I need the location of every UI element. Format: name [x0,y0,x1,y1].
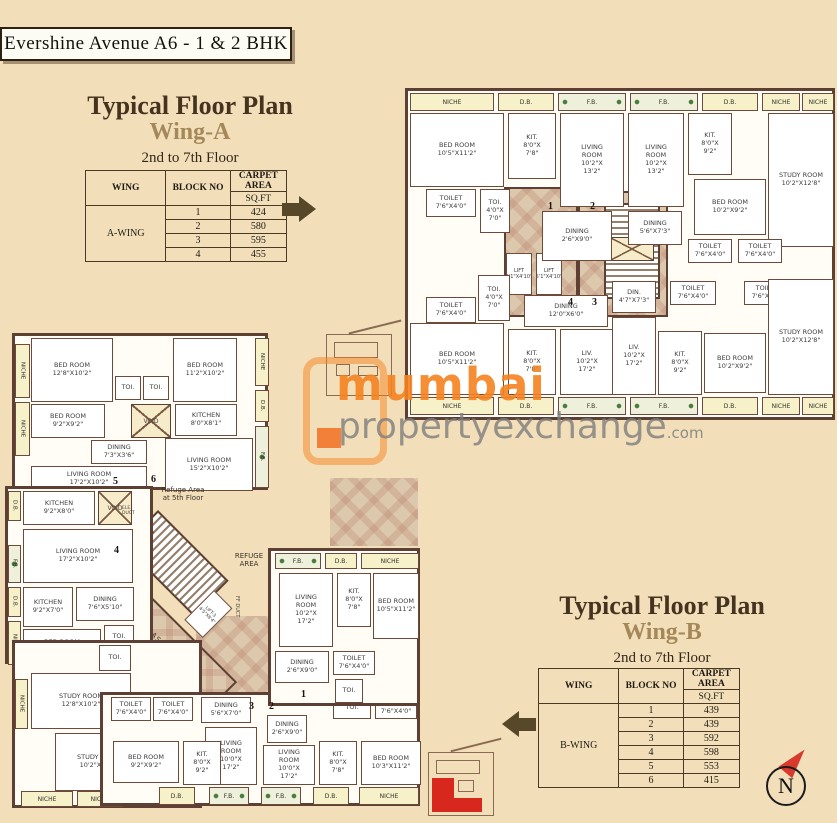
key-plan-outline [349,319,402,334]
unit-number: 3 [249,701,254,712]
niche-strip: NICHE [410,397,494,415]
wing-a-col-wing: WING [86,171,166,206]
room-kitchen: KIT. 8'0"X 9'2" [688,113,732,175]
room-bedroom: BED ROOM 9'2"X9'2" [113,741,179,783]
table-cell: 595 [230,234,286,248]
room-toilet: TOI. 4'0"X 7'0" [478,275,510,321]
plan-wing-a: LIFT 5'1"X4'10" LIFT 5'1"X4'10" NICHE D.… [405,88,835,420]
room-dining: DIN. 4'7"X7'3" [612,281,656,313]
db-strip: D.B. [313,787,349,805]
room-living: LIVING ROOM 10'0"X 17'2" [263,745,315,785]
room-bedroom: BED ROOM 10'5"X11'2" [373,573,419,639]
table-cell: 592 [683,732,739,746]
table-cell: 1 [166,206,230,220]
room-toilet: TOI. [335,679,363,703]
fb-strip: F.B. [8,545,21,583]
room-kitchen: KIT. 8'0"X 9'2" [183,741,221,785]
db-strip: D.B. [255,390,269,422]
unit-number: 1 [301,689,306,700]
niche-strip: NICHE [410,93,494,111]
plan-wing-b-top: NICHE NICHE BED ROOM 12'8"X10'2" TOI. TO… [12,333,268,490]
niche-strip: NICHE [15,679,28,729]
table-cell: 6 [619,774,683,788]
table-cell: 439 [683,718,739,732]
db-strip: D.B. [498,93,554,111]
room-kitchen: KIT. 8'0"X 7'8" [337,573,371,627]
room-bedroom: BED ROOM 10'3"X11'2" [361,741,421,785]
key-plan-building [334,342,378,358]
fb-strip: F.B. [261,787,301,805]
room-toilet: TOILET 7'6"X4'0" [688,239,732,263]
room-dining: DINING 5'6"X7'0" [201,697,251,723]
table-cell: 4 [166,248,230,262]
room-dining: DINING 2'6"X9'0" [542,211,612,261]
wing-a-table: WING BLOCK NO CARPET AREA SQ.FT A-WING 1… [85,170,287,262]
key-plan-highlight-wing-b [454,798,482,812]
wing-b-arrow [502,711,536,737]
fb-strip: F.B. [275,553,321,569]
niche-strip: NICHE [762,93,800,111]
table-cell: 580 [230,220,286,234]
wing-a-col-unit: SQ.FT [230,192,286,206]
room-kitchen: KIT. 8'0"X 9'2" [658,331,702,395]
fb-strip: F.B. [209,787,249,805]
niche-strip: NICHE [255,338,269,386]
ff-duct-label: FF DUCT [234,596,240,630]
niche-strip: NICHE [21,791,73,807]
room-dining: DINING 2'6"X9'0" [267,715,307,743]
fb-strip: F.B. [630,93,698,111]
room-bedroom: BED ROOM 10'2"X9'2" [704,333,766,393]
wing-b-title: Typical Floor Plan [540,592,784,619]
plan-wing-b-bottom: TOILET 7'6"X4'0" TOILET 7'6"X4'0" DINING… [100,692,420,806]
table-cell: 455 [230,248,286,262]
wing-b-floors: 2nd to 7th Floor [540,650,784,667]
room-living: LIVING ROOM 10'2"X 13'2" [628,113,684,207]
table-cell: 598 [683,746,739,760]
niche-strip: NICHE [15,402,30,456]
table-cell: 439 [683,704,739,718]
refuge-area-label: REFUGE AREA [222,552,276,568]
page-title: Evershine Avenue A6 - 1 & 2 BHK [0,27,292,61]
arrow-head-left-icon [502,711,519,737]
unit-number: 2 [590,201,595,212]
table-cell: 424 [230,206,286,220]
room-kitchen: KITCHEN 9'2"X8'0" [23,491,95,525]
room-kitchen: KIT. 8'0"X 7'8" [319,741,357,785]
wing-a-col-block: BLOCK NO [166,171,230,206]
room-toilet: TOILET 7'6"X4'0" [738,239,782,263]
compass-icon: N [766,766,806,806]
terrace-area [330,478,418,546]
wing-b-col-wing: WING [539,669,619,704]
room-bedroom: BED ROOM 10'5"X11'2" [410,113,504,187]
room-living: LIVING ROOM 15'2"X10'2" [165,438,253,491]
arrow-head-right-icon [299,196,316,222]
wing-b-col-unit: SQ.FT [683,690,739,704]
niche-strip: NICHE [15,344,30,398]
key-plan-building [458,780,474,792]
room-toilet: TOI. [115,376,141,400]
room-dining: DINING 2'6"X9'0" [275,651,329,683]
room-toilet: TOILET 7'6"X4'0" [333,651,375,675]
table-cell: 1 [619,704,683,718]
key-plan-outline [451,738,502,753]
room-living: LIVING ROOM 10'2"X 17'2" [279,573,333,647]
fb-strip: F.B. [255,426,269,488]
table-cell: 5 [619,760,683,774]
room-toilet: TOI. [143,376,169,400]
watermark-tld: .com [667,424,704,442]
table-cell: 553 [683,760,739,774]
unit-number: 4 [114,545,119,556]
room-toilet: TOILET 7'6"X4'0" [153,697,193,721]
key-plan-highlight-wing-b [432,778,454,812]
db-strip: D.B. [498,397,554,415]
room-dining: DINING 7'6"X5'10" [76,587,134,621]
room-bedroom: BED ROOM 9'2"X9'2" [31,404,105,438]
unit-number: 2 [269,701,274,712]
wing-a-col-area: CARPET AREA [230,171,286,192]
fb-strip: F.B. [558,93,626,111]
compass-n-label: N [778,773,794,799]
refuge-floor-label: Refuge Area at 5th Floor [140,486,226,502]
key-plan-wing-b [424,740,504,822]
room-toilet: TOILET 7'6"X4'0" [426,189,476,217]
room-kitchen: KITCHEN 9'2"X7'0" [23,587,73,627]
wing-a-arrow [282,196,316,222]
fb-strip: F.B. [558,397,626,415]
db-strip: D.B. [702,397,758,415]
room-kitchen: KIT. 8'0"X 7'8" [508,329,556,395]
db-strip: D.B. [325,553,357,569]
db-strip: D.B. [8,491,21,521]
wing-a-floors: 2nd to 7th Floor [68,150,312,167]
room-toilet: TOI. [99,645,131,671]
wing-a-title: Typical Floor Plan [68,92,312,119]
room-study: STUDY ROOM 10'2"X12'8" [768,279,834,395]
arrow-shaft [519,718,536,731]
void-shaft: VOID [131,404,171,438]
wing-a-heading-block: Typical Floor Plan Wing-A 2nd to 7th Flo… [68,92,312,167]
unit-number: 4 [568,297,573,308]
wing-b-heading-block: Typical Floor Plan Wing-B 2nd to 7th Flo… [540,592,784,667]
ele-duct-label: ELE. DUCT [122,506,144,516]
arrow-shaft [282,203,299,216]
room-living: LIV. 10'2"X 17'2" [560,329,614,395]
room-dining: DINING 5'6"X7'3" [628,211,682,245]
room-living: LIV. 10'2"X 17'2" [612,317,656,395]
niche-strip: NICHE [361,553,419,569]
room-toilet: TOILET 7'6"X4'0" [670,281,716,305]
room-study: STUDY ROOM 10'2"X12'8" [768,113,834,247]
watermark-logo-square [317,428,341,448]
niche-strip: NICHE [359,787,419,805]
table-cell: 4 [619,746,683,760]
unit-number: 1 [548,201,553,212]
wing-b-name-cell: B-WING [539,704,619,788]
table-cell: 415 [683,774,739,788]
wing-a-name-cell: A-WING [86,206,166,262]
room-bedroom: BED ROOM 11'2"X10'2" [173,338,237,402]
db-strip: D.B. [702,93,758,111]
wing-b-col-area: CARPET AREA [683,669,739,690]
room-toilet: TOILET 7'6"X4'0" [426,297,476,323]
fb-strip: F.B. [630,397,698,415]
room-living: LIVING ROOM 17'2"X10'2" [23,529,133,583]
table-cell: 2 [619,718,683,732]
table-cell: 3 [619,732,683,746]
table-cell: 3 [166,234,230,248]
room-bedroom: BED ROOM 10'2"X9'2" [694,179,766,235]
niche-strip: NICHE [802,93,834,111]
room-bedroom: BED ROOM 10'5"X11'2" [410,323,504,395]
room-kitchen: KIT. 8'0"X 7'8" [508,113,556,179]
unit-number: 3 [592,297,597,308]
wing-b-table: WING BLOCK NO CARPET AREA SQ.FT B-WING 1… [538,668,740,788]
room-bedroom: BED ROOM 12'8"X10'2" [31,338,113,402]
room-living: LIVING ROOM 10'2"X 13'2" [560,113,624,207]
watermark-logo-icon [303,357,387,465]
wing-b-subtitle: Wing-B [540,619,784,645]
db-strip: D.B. [8,587,21,617]
room-kitchen: KITCHEN 8'0"X8'1" [175,404,237,436]
plan-wing-b-unit1: F.B. D.B. NICHE LIVING ROOM 10'2"X 17'2"… [268,548,420,706]
niche-strip: NICHE [802,397,834,415]
table-cell: 2 [166,220,230,234]
unit-number: 5 [113,476,118,487]
db-strip: D.B. [159,787,195,805]
key-plan-building [436,760,480,774]
unit-number: 6 [151,474,156,485]
niche-strip: NICHE [762,397,800,415]
floor-plan-page: Evershine Avenue A6 - 1 & 2 BHK Typical … [0,0,837,823]
room-dining: DINING 7'3"X3'6" [91,440,147,464]
room-toilet: TOI. 4'0"X 7'0" [480,189,510,233]
wing-a-subtitle: Wing-A [68,119,312,145]
wing-b-col-block: BLOCK NO [619,669,683,704]
room-toilet: TOILET 7'6"X4'0" [111,697,151,721]
